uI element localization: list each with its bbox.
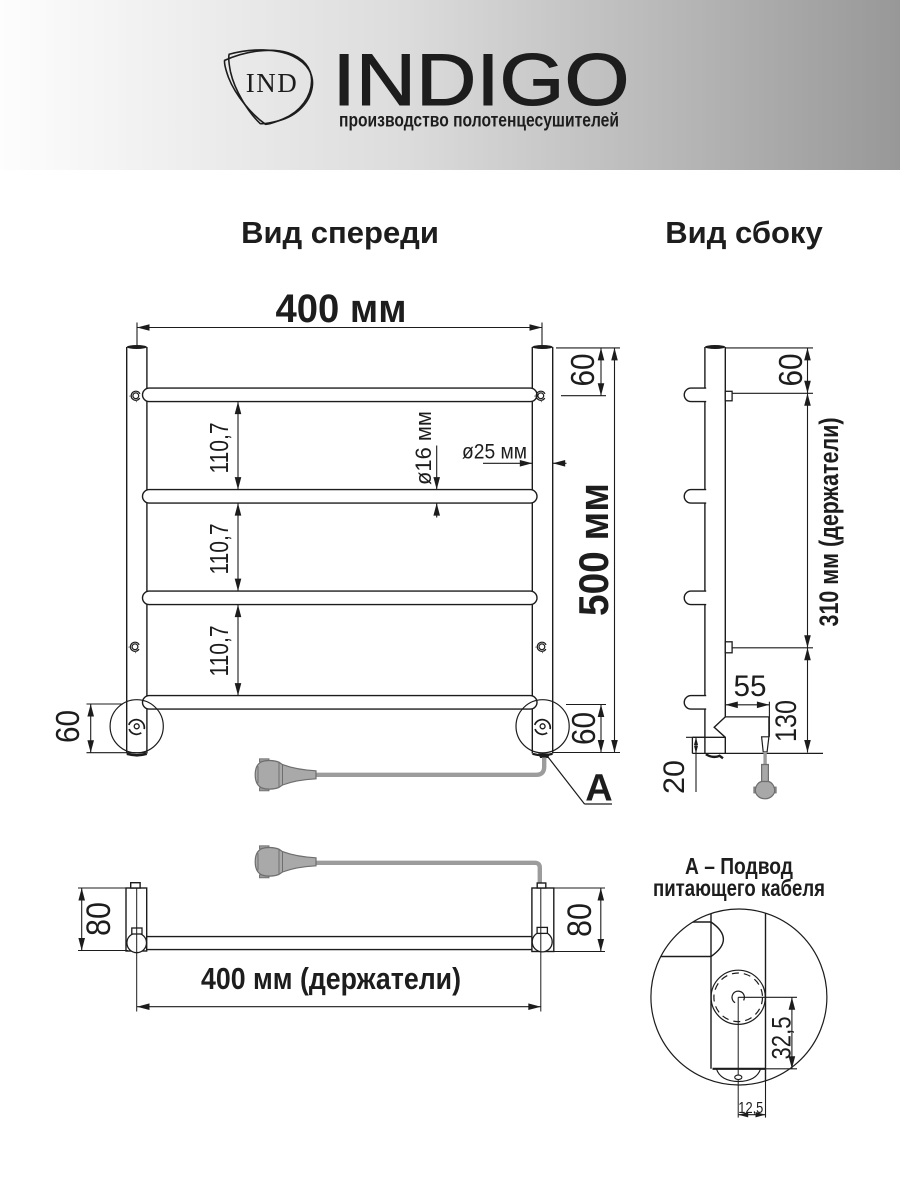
svg-text:110,7: 110,7 [204, 423, 234, 474]
svg-text:ø16 мм: ø16 мм [411, 411, 436, 485]
svg-text:производство полотенцесушителе: производство полотенцесушителей [339, 111, 619, 132]
svg-text:Вид сбоку: Вид сбоку [665, 215, 823, 250]
svg-text:80: 80 [561, 903, 599, 937]
svg-text:500 мм: 500 мм [570, 483, 617, 616]
svg-text:130: 130 [770, 700, 803, 742]
svg-text:110,7: 110,7 [204, 626, 234, 677]
svg-text:60: 60 [565, 712, 602, 745]
svg-text:INDIGO: INDIGO [333, 40, 630, 121]
svg-text:400 мм (держатели): 400 мм (держатели) [201, 961, 461, 996]
svg-text:20: 20 [658, 760, 691, 794]
svg-text:ø25 мм: ø25 мм [462, 441, 527, 464]
svg-text:80: 80 [80, 902, 118, 936]
svg-text:60: 60 [49, 710, 86, 743]
svg-text:400 мм: 400 мм [276, 287, 407, 331]
svg-text:60: 60 [564, 354, 601, 387]
svg-text:55: 55 [734, 670, 767, 703]
svg-text:питающего кабеля: питающего кабеля [653, 875, 825, 901]
svg-text:IND: IND [246, 68, 299, 98]
svg-text:Вид спереди: Вид спереди [241, 215, 439, 250]
svg-text:60: 60 [772, 354, 809, 387]
svg-text:32,5: 32,5 [767, 1017, 797, 1060]
svg-text:310 мм (держатели): 310 мм (держатели) [814, 418, 844, 627]
svg-text:A: A [585, 768, 612, 810]
svg-text:110,7: 110,7 [204, 524, 234, 575]
svg-text:12,5: 12,5 [738, 1100, 763, 1117]
